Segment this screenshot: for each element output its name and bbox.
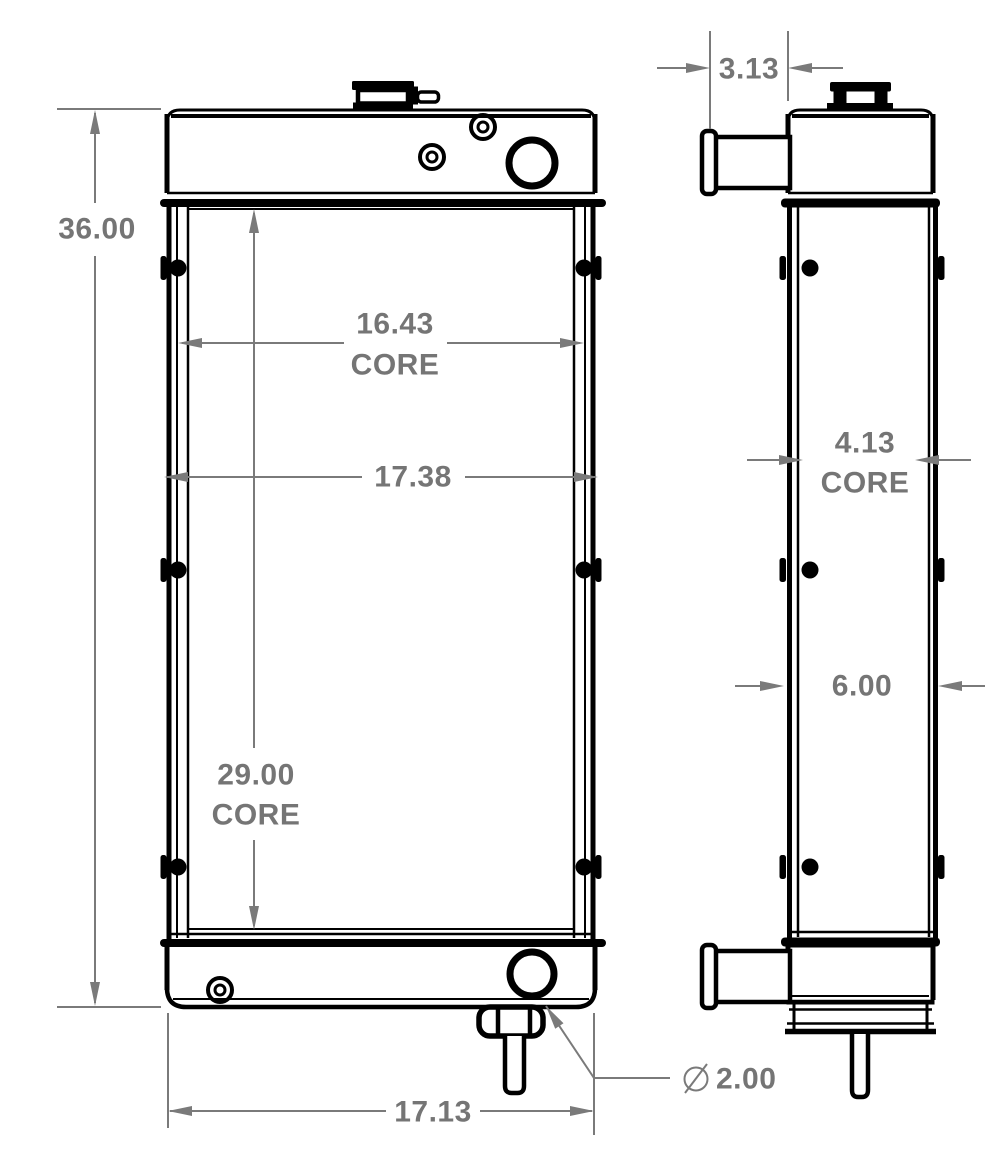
dim-label-core-depth-suffix: CORE	[821, 467, 910, 500]
rivet-dot	[802, 260, 819, 277]
rivet-dot	[170, 859, 187, 876]
tie-rod-nub	[161, 256, 167, 280]
rivet-dot	[170, 562, 187, 579]
tie-rod-nub	[780, 558, 787, 582]
tie-rod-nub	[596, 558, 602, 582]
bottom-tank-side	[788, 946, 933, 1003]
tie-rod-nub	[161, 558, 167, 582]
arrowhead-up	[249, 209, 259, 233]
dim-label-overall-depth: 6.00	[832, 670, 892, 703]
upper-header-side	[781, 193, 940, 208]
arrowhead-right	[560, 338, 584, 348]
drain-petcock	[479, 1007, 543, 1093]
arrowhead-right	[760, 681, 784, 691]
drain-stem-side	[852, 1034, 868, 1097]
dim-core-width: 16.43 CORE	[178, 308, 584, 382]
dim-label-overall-width: 17.13	[394, 1096, 472, 1129]
leader-line	[546, 1006, 670, 1078]
rivet-dot	[170, 260, 187, 277]
top-tank-side	[788, 110, 933, 193]
tie-rod-nub	[938, 558, 945, 582]
bottom-tank	[167, 947, 595, 1007]
mounting-bracket	[785, 1003, 936, 1032]
dim-label-core-height-suffix: CORE	[212, 799, 301, 832]
radiator-drawing: 36.00 16.43 CORE 17.38 29.00 CORE	[0, 0, 986, 1169]
dim-outlet-diameter: 2.00	[546, 1006, 776, 1096]
tie-rod-nub	[596, 855, 602, 879]
lower-hose-fitting	[702, 945, 790, 1008]
tie-rod-nub	[938, 855, 945, 879]
dim-label-core-depth: 4.13	[835, 427, 895, 460]
overflow-nipple	[418, 92, 439, 102]
upper-header	[160, 193, 606, 207]
hose-bead	[702, 131, 716, 194]
dim-label-outlet-diameter: 2.00	[716, 1063, 776, 1096]
tie-rod-nub	[780, 855, 787, 879]
tie-rod-nub	[780, 256, 787, 280]
dim-core-height: 29.00 CORE	[212, 209, 301, 930]
rivet-dot	[576, 260, 593, 277]
tie-rod-nub	[596, 256, 602, 280]
radiator-cap-front	[352, 81, 439, 110]
arrowhead-right	[570, 1106, 594, 1116]
lower-header	[160, 934, 606, 947]
hose-bead	[702, 945, 716, 1008]
arrowhead-left	[938, 681, 962, 691]
diameter-symbol	[685, 1064, 708, 1093]
radiator-cap-side	[827, 82, 893, 109]
dim-label-fitting-protrusion: 3.13	[719, 53, 779, 86]
front-view	[160, 81, 606, 1093]
rivet-dot	[802, 859, 819, 876]
upper-hose-fitting	[702, 131, 790, 194]
tie-rod-nub	[161, 855, 167, 879]
drain-stem	[505, 1036, 524, 1093]
dim-upper-width: 17.38	[164, 461, 598, 494]
arrowhead-left	[788, 63, 812, 73]
leader-arrowhead	[546, 1006, 564, 1029]
side-view	[702, 82, 945, 1097]
rivet-dot	[576, 562, 593, 579]
arrowhead-left	[915, 455, 939, 465]
dim-label-overall-height: 36.00	[58, 213, 136, 246]
arrowhead-down	[90, 982, 100, 1006]
arrowhead-up	[90, 110, 100, 134]
dim-overall-depth: 6.00	[735, 670, 985, 703]
core-side	[780, 203, 945, 939]
dim-label-core-height: 29.00	[217, 759, 295, 792]
lower-header-side	[781, 932, 940, 947]
rivet-dot	[576, 859, 593, 876]
arrowhead-right	[686, 63, 710, 73]
dim-overall-height: 36.00	[57, 109, 161, 1007]
arrowhead-down	[249, 906, 259, 930]
dim-label-upper-width: 17.38	[374, 461, 452, 494]
arrowhead-left	[178, 338, 202, 348]
rivet-dot	[802, 562, 819, 579]
arrowhead-left	[168, 1106, 192, 1116]
dim-label-core-width: 16.43	[356, 308, 434, 341]
tie-rod-nub	[938, 256, 945, 280]
top-tank	[167, 110, 595, 193]
dim-label-core-width-suffix: CORE	[351, 349, 440, 382]
drawing-page: 36.00 16.43 CORE 17.38 29.00 CORE	[0, 0, 986, 1169]
